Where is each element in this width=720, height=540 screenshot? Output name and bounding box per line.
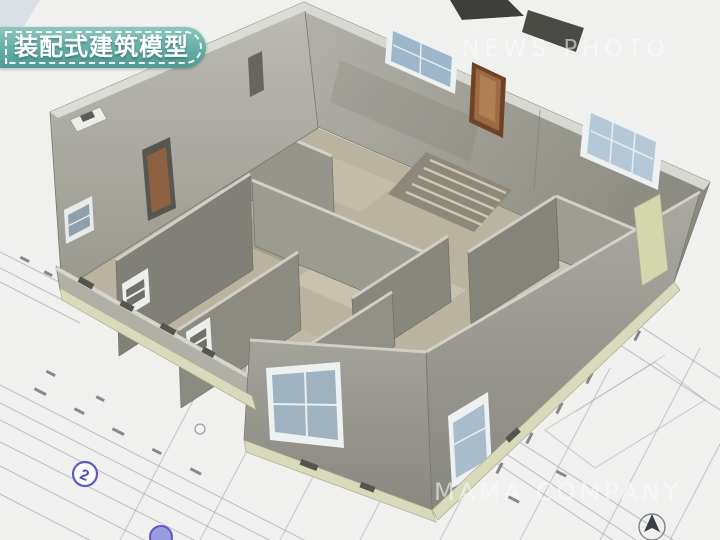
grid-bubble-partial — [150, 526, 172, 540]
scene-graphic: 2 — [0, 0, 720, 540]
photo-canvas: 2 — [0, 0, 720, 540]
small-node-circle — [195, 424, 205, 434]
sw-wall-window — [266, 362, 344, 448]
badge-label: 装配式建筑模型 — [14, 27, 189, 68]
nw-wall-slot — [248, 51, 264, 97]
nw-wall-door — [142, 137, 176, 221]
title-badge: 装配式建筑模型 — [0, 27, 206, 68]
